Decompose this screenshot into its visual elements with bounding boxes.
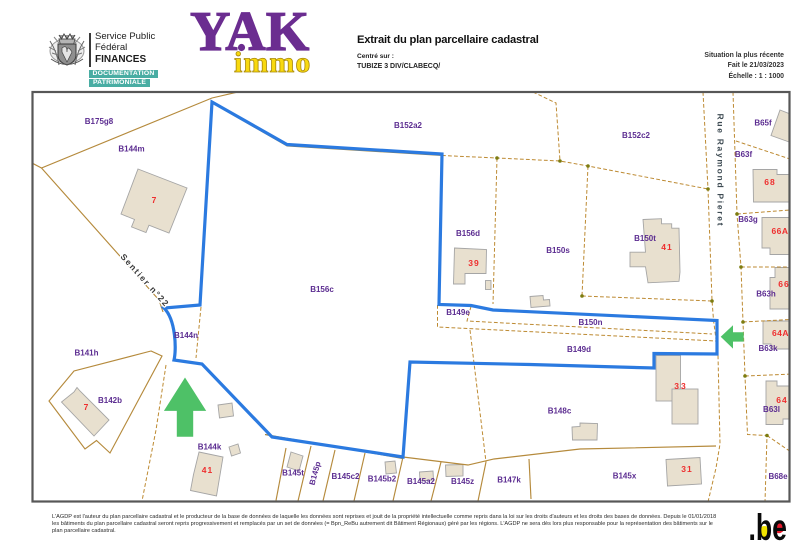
svg-text:68: 68 <box>764 177 775 187</box>
svg-text:B152c2: B152c2 <box>622 131 651 140</box>
svg-text:B150t: B150t <box>634 234 656 243</box>
svg-text:66A: 66A <box>771 226 788 236</box>
svg-text:B147k: B147k <box>497 476 521 485</box>
svg-text:B142b: B142b <box>98 396 122 405</box>
svg-text:B156c: B156c <box>310 285 334 294</box>
svg-text:.be: .be <box>749 507 787 548</box>
svg-text:B144m: B144m <box>118 145 144 154</box>
svg-text:B145x: B145x <box>613 472 637 481</box>
svg-text:B141h: B141h <box>74 349 98 358</box>
svg-text:Rue Raymond Pieret: Rue Raymond Pieret <box>716 114 726 228</box>
svg-text:7: 7 <box>84 402 89 412</box>
svg-text:B148c: B148c <box>548 407 572 416</box>
svg-text:41: 41 <box>202 465 213 475</box>
svg-text:B63k: B63k <box>758 344 778 353</box>
svg-text:B175g8: B175g8 <box>85 117 114 126</box>
svg-text:B156d: B156d <box>456 229 480 238</box>
svg-text:B145p: B145p <box>308 460 323 486</box>
svg-text:B145b2: B145b2 <box>368 475 397 484</box>
svg-text:B144n: B144n <box>174 331 198 340</box>
svg-text:7: 7 <box>152 195 157 205</box>
svg-text:B63h: B63h <box>756 290 776 299</box>
svg-text:B145t: B145t <box>282 469 304 478</box>
svg-text:B63f: B63f <box>735 150 753 159</box>
svg-text:66: 66 <box>778 279 789 289</box>
svg-text:B150s: B150s <box>546 246 570 255</box>
svg-text:B149d: B149d <box>567 345 591 354</box>
svg-text:B152a2: B152a2 <box>394 121 423 130</box>
svg-text:41: 41 <box>661 242 672 252</box>
svg-text:31: 31 <box>681 464 692 474</box>
svg-text:Sentier n°22: Sentier n°22 <box>119 252 172 310</box>
svg-text:64A: 64A <box>772 328 789 338</box>
svg-text:B63l: B63l <box>763 405 780 414</box>
svg-text:B145z: B145z <box>451 477 474 486</box>
svg-text:B65f: B65f <box>754 119 772 128</box>
svg-text:B145a2: B145a2 <box>407 477 436 486</box>
svg-text:39: 39 <box>468 258 479 268</box>
svg-text:33: 33 <box>674 381 687 391</box>
svg-text:B145c2: B145c2 <box>331 472 360 481</box>
svg-text:B150n: B150n <box>578 318 602 327</box>
svg-text:64: 64 <box>776 395 787 405</box>
svg-text:B144k: B144k <box>198 443 222 452</box>
svg-text:B63g: B63g <box>738 215 758 224</box>
svg-text:B68e: B68e <box>768 472 788 481</box>
svg-text:B149e: B149e <box>446 308 470 317</box>
